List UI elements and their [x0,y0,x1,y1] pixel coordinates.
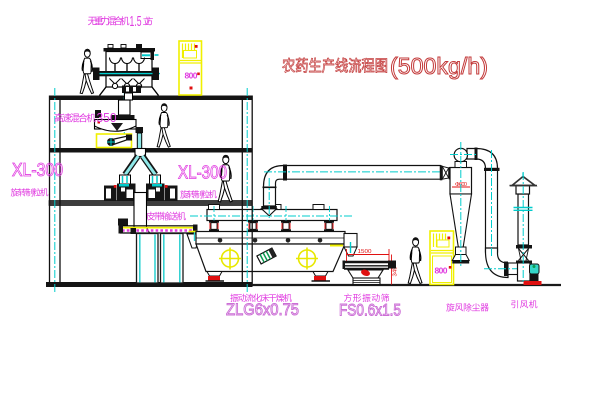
svg-text:(500kg/h): (500kg/h) [390,53,488,79]
svg-text:350: 350 [97,110,117,125]
svg-text:800: 800 [435,266,448,276]
svg-text:800: 800 [185,71,198,81]
svg-text:高速混合机: 高速混合机 [54,113,96,125]
svg-text:皮带输送机: 皮带输送机 [146,211,186,222]
svg-text:旋转制粒机: 旋转制粒机 [180,189,217,200]
svg-text:1500: 1500 [358,249,372,255]
svg-text:XL-300: XL-300 [12,160,63,180]
svg-text:无重力混合机: 无重力混合机 [88,16,130,28]
svg-text:立方: 立方 [143,16,154,27]
svg-text:旋风除尘器: 旋风除尘器 [446,302,489,313]
svg-text:1.5: 1.5 [130,14,142,30]
svg-text:ZLG6x0.75: ZLG6x0.75 [226,300,299,319]
svg-text:引风机: 引风机 [511,299,538,310]
svg-text:XL-300: XL-300 [178,163,227,183]
svg-text:旋转制粒机: 旋转制粒机 [11,187,49,198]
svg-text:FS0.6x1.5: FS0.6x1.5 [339,301,401,320]
svg-text:农药生产线流程图: 农药生产线流程图 [282,57,388,75]
